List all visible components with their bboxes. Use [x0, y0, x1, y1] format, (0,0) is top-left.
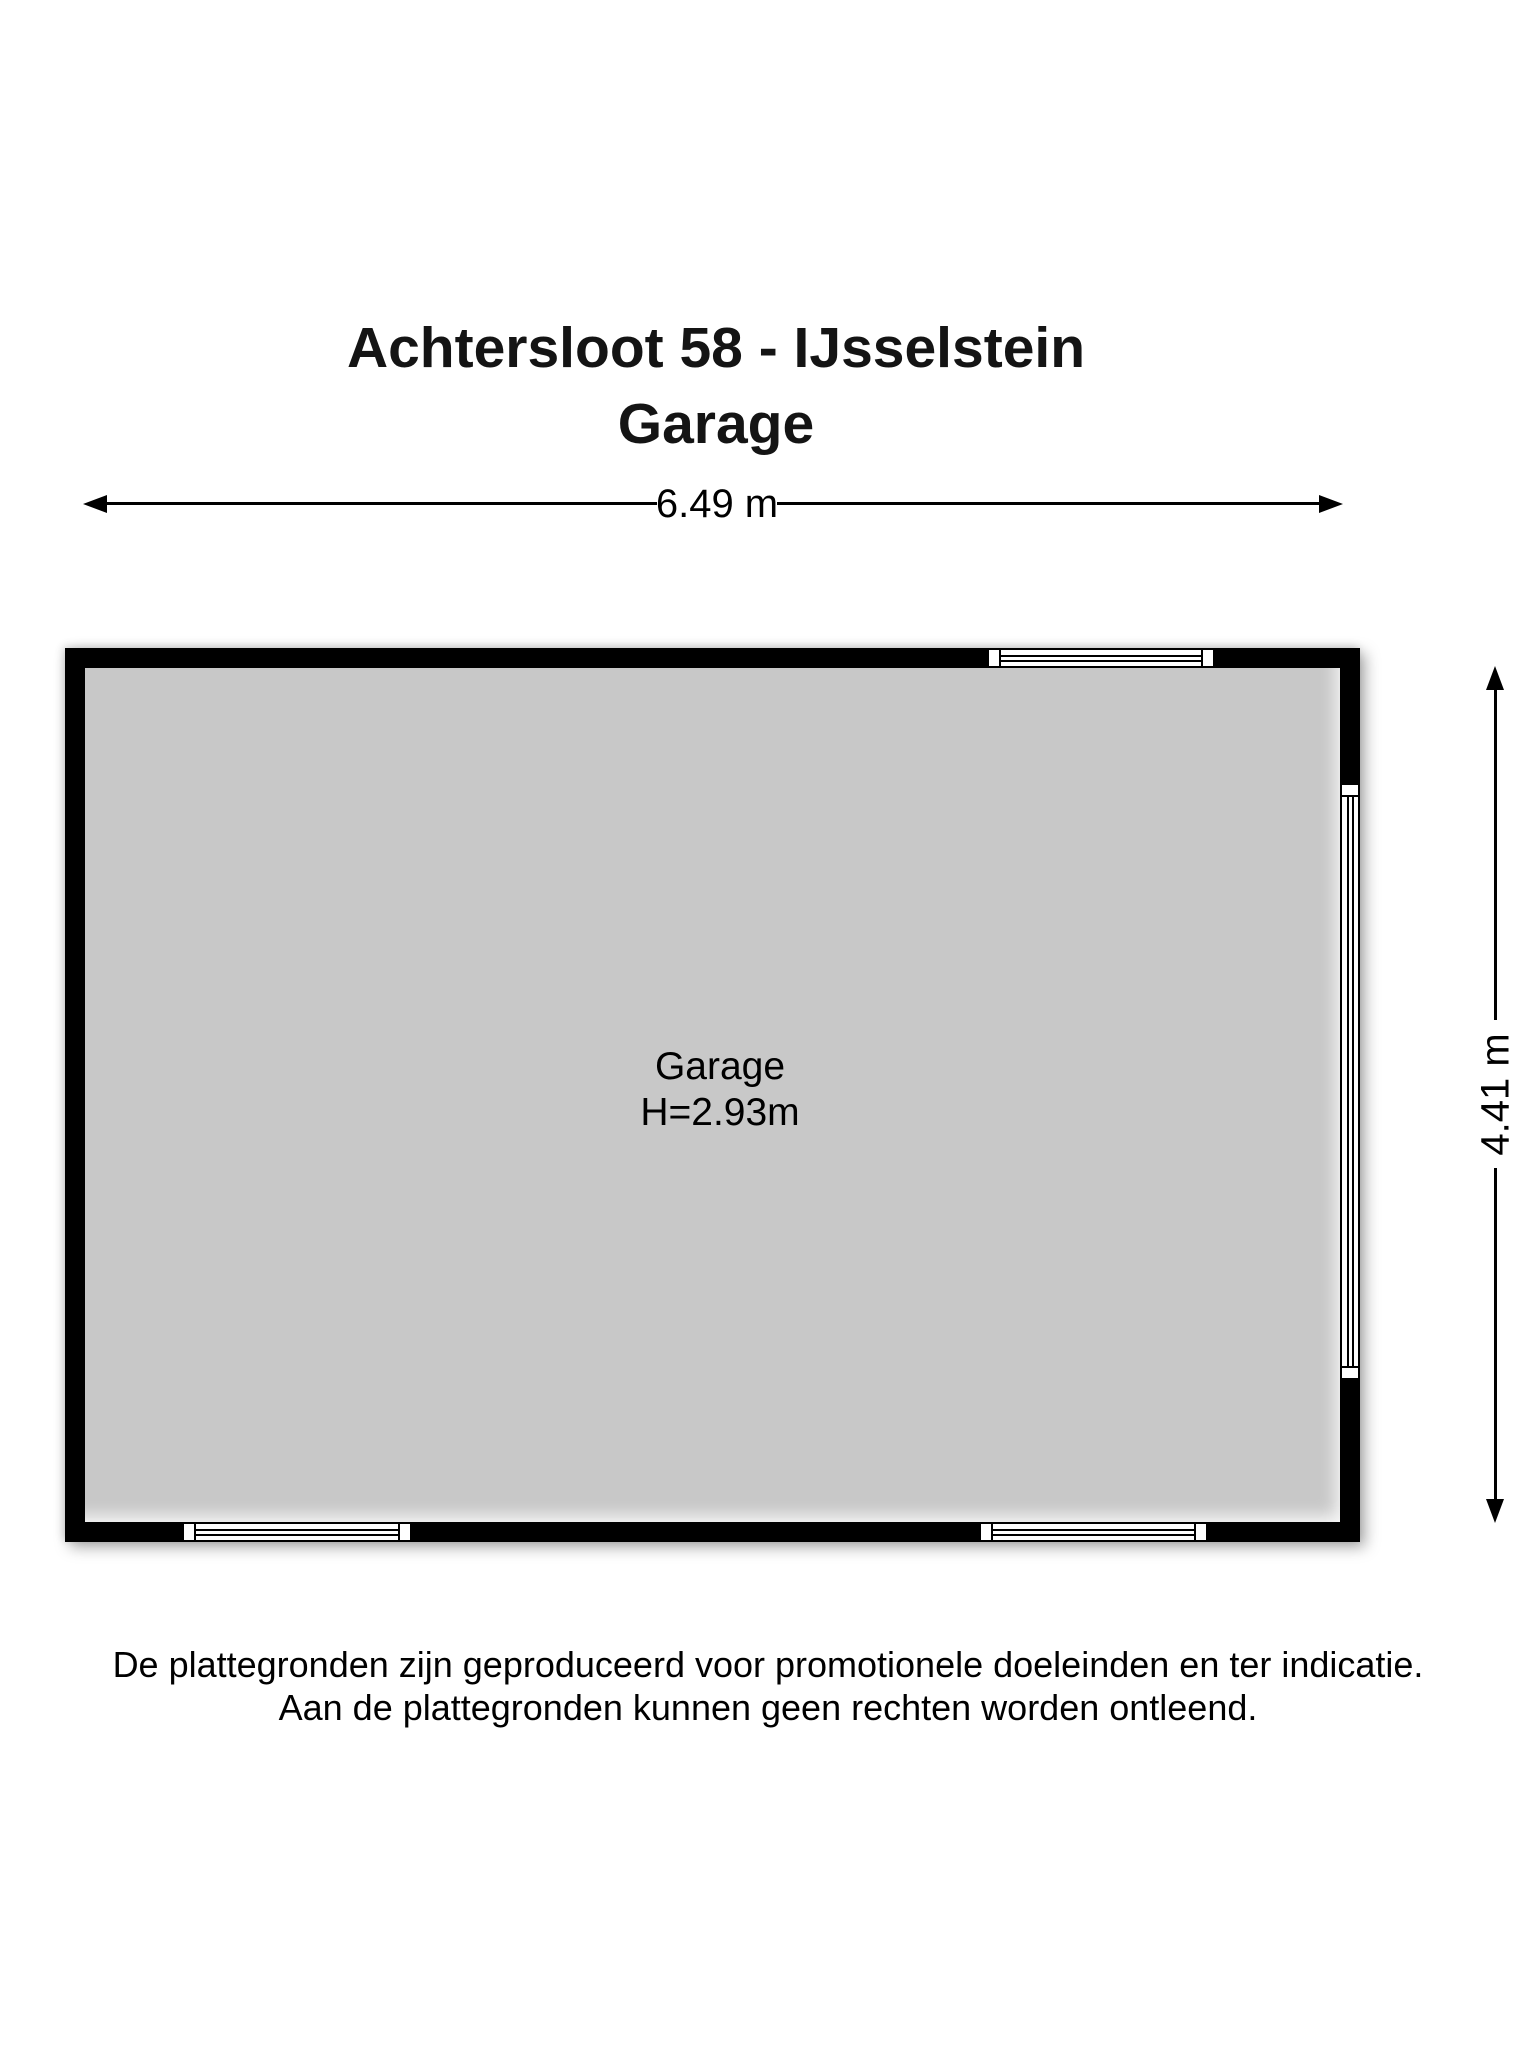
page-title: Achtersloot 58 - IJsselstein Garage [0, 310, 1432, 462]
window-post [987, 648, 1001, 668]
window-post [1194, 1522, 1208, 1542]
arrow-up-icon [1486, 666, 1504, 690]
window-pane [195, 1534, 399, 1536]
height-dimension-line-bottom [1494, 1168, 1497, 1500]
width-dimension-line-right [777, 502, 1319, 505]
window-post [979, 1522, 993, 1542]
window-pane [992, 1529, 1195, 1531]
window-post [1340, 1366, 1360, 1380]
window-post [182, 1522, 196, 1542]
arrow-right-icon [1319, 495, 1343, 513]
garage-floorplan: Garage H=2.93m [65, 648, 1360, 1542]
arrow-down-icon [1486, 1499, 1504, 1523]
window-pane [195, 1529, 399, 1531]
height-dimension-label: 4.41 m [1471, 1020, 1521, 1168]
room-label: Garage H=2.93m [355, 1044, 1085, 1136]
window-bottom-left [182, 1522, 412, 1542]
window-right [1340, 783, 1360, 1380]
window-post [1340, 783, 1360, 797]
disclaimer-line2: Aan de plattegronden kunnen geen rechten… [0, 1686, 1536, 1729]
width-dimension-line-left [105, 502, 657, 505]
disclaimer-line1: De plattegronden zijn geproduceerd voor … [0, 1643, 1536, 1686]
height-dimension-text: 4.41 m [1474, 1033, 1519, 1155]
window-post [398, 1522, 412, 1542]
arrow-left-icon [83, 495, 107, 513]
title-address: Achtersloot 58 - IJsselstein [0, 310, 1432, 386]
width-dimension-label: 6.49 m [647, 480, 787, 528]
height-dimension-line-top [1494, 688, 1497, 1020]
window-pane [992, 1534, 1195, 1536]
title-room: Garage [0, 386, 1432, 462]
window-pane [1347, 796, 1349, 1367]
room-name: Garage [355, 1044, 1085, 1090]
window-pane [1000, 655, 1202, 657]
disclaimer: De plattegronden zijn geproduceerd voor … [0, 1643, 1536, 1729]
window-bottom-right [979, 1522, 1208, 1542]
floorplan-page: Achtersloot 58 - IJsselstein Garage 6.49… [0, 0, 1536, 2048]
window-top [987, 648, 1215, 668]
window-post [1201, 648, 1215, 668]
window-pane [1000, 660, 1202, 662]
room-height: H=2.93m [355, 1090, 1085, 1136]
window-pane [1352, 796, 1354, 1367]
